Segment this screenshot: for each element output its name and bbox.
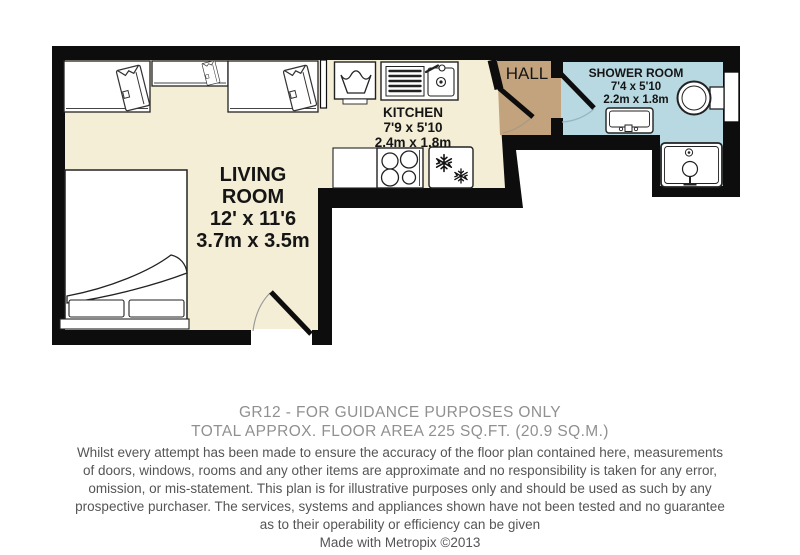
living-room-size-imperial: 12' x 11'6 xyxy=(210,208,296,230)
caption-disclaimer: Whilst every attempt has been made to en… xyxy=(0,444,800,534)
wardrobe-right xyxy=(228,61,318,112)
shower-room-size-imperial: 7'4 x 5'10 xyxy=(611,81,661,93)
living-room-size-metric: 3.7m x 3.5m xyxy=(196,230,309,252)
vanity-basin xyxy=(606,108,653,133)
hall-name: HALL xyxy=(506,64,549,83)
disclaimer-line: of doors, windows, rooms and any other i… xyxy=(0,462,800,480)
kitchen-sink xyxy=(381,62,458,100)
disclaimer-line: Whilst every attempt has been made to en… xyxy=(0,444,800,462)
pillow xyxy=(129,300,184,317)
credit-line: Made with Metropix ©2013 xyxy=(0,534,800,552)
shower-room-name: SHOWER ROOM xyxy=(589,66,684,80)
kitchen-name: KITCHEN xyxy=(383,105,443,120)
living-room-door-opening xyxy=(251,329,312,346)
headboard xyxy=(60,319,189,329)
living-room-name-line2: ROOM xyxy=(222,186,284,208)
toilet xyxy=(678,82,725,115)
floorplan-drawing: LIVING ROOM 12' x 11'6 3.7m x 3.5m KITCH… xyxy=(0,0,800,402)
hall-label: HALL xyxy=(506,64,549,83)
pillow xyxy=(69,300,124,317)
shelf-middle xyxy=(152,61,228,86)
disclaimer-line: omission, or mis-statement. This plan is… xyxy=(0,480,800,498)
window xyxy=(724,72,739,122)
hall-shower-wall-stub-bottom xyxy=(551,118,563,136)
living-kitchen-partition xyxy=(321,60,327,108)
caption-title-line1: GR12 - FOR GUIDANCE PURPOSES ONLY xyxy=(0,403,800,422)
kitchen-label: KITCHEN 7'9 x 5'10 2.4m x 1.8m xyxy=(375,105,452,150)
wardrobe-left xyxy=(64,61,150,112)
bed xyxy=(60,170,189,329)
shower-basin xyxy=(661,143,722,187)
hob xyxy=(377,148,423,188)
washing-machine xyxy=(335,62,376,104)
kitchen-size-imperial: 7'9 x 5'10 xyxy=(384,120,443,135)
shower-room-size-metric: 2.2m x 1.8m xyxy=(603,94,668,106)
floorplan-page: LIVING ROOM 12' x 11'6 3.7m x 3.5m KITCH… xyxy=(0,0,800,555)
kitchen-counter xyxy=(333,148,378,188)
living-room-name-line1: LIVING xyxy=(220,164,287,186)
kitchen-size-metric: 2.4m x 1.8m xyxy=(375,135,452,150)
caption-block: GR12 - FOR GUIDANCE PURPOSES ONLY TOTAL … xyxy=(0,403,800,552)
disclaimer-line: prospective purchaser. The services, sys… xyxy=(0,498,800,516)
caption-title-line2: TOTAL APPROX. FLOOR AREA 225 SQ.FT. (20.… xyxy=(0,422,800,441)
disclaimer-line: as to their operability or efficiency ca… xyxy=(0,516,800,534)
fridge xyxy=(429,147,473,188)
